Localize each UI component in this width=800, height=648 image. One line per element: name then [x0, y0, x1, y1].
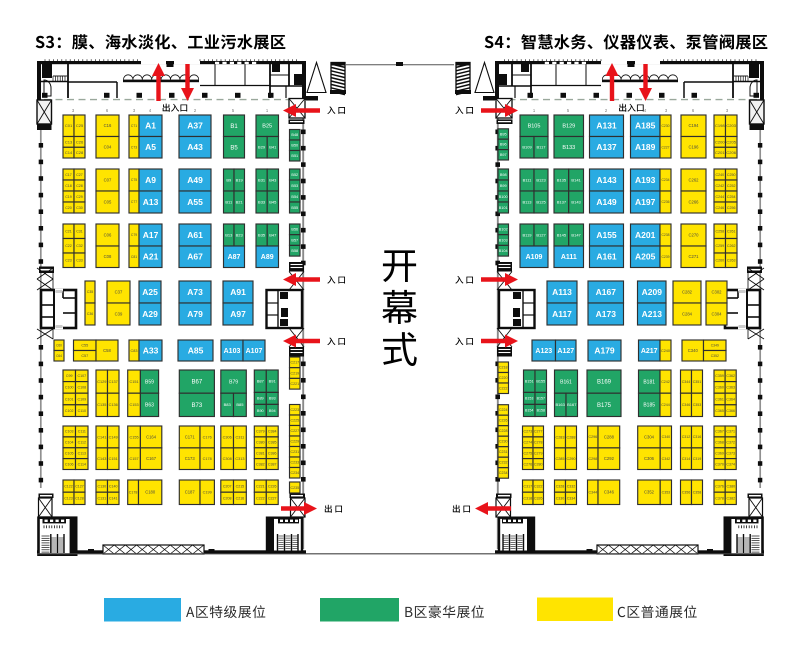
svg-text:C39: C39 [115, 312, 123, 317]
svg-text:C222: C222 [256, 497, 265, 501]
svg-text:C127: C127 [75, 484, 84, 488]
svg-text:C32: C32 [76, 244, 83, 248]
svg-text:C109: C109 [78, 397, 87, 401]
svg-text:B50: B50 [291, 144, 298, 148]
svg-text:B143: B143 [571, 199, 581, 204]
svg-text:C240: C240 [661, 349, 670, 353]
svg-text:C225: C225 [291, 419, 300, 423]
svg-text:B87: B87 [257, 379, 265, 384]
svg-text:C201: C201 [715, 150, 725, 155]
svg-text:C274: C274 [524, 441, 533, 445]
svg-text:B95: B95 [500, 132, 507, 136]
svg-text:C222: C222 [499, 387, 508, 391]
svg-text:C258: C258 [716, 230, 725, 234]
svg-text:C384: C384 [268, 430, 277, 434]
svg-text:C313: C313 [235, 457, 244, 461]
svg-text:C326: C326 [534, 497, 543, 501]
svg-text:C252: C252 [727, 184, 736, 188]
svg-text:C37: C37 [115, 290, 123, 295]
svg-text:B100: B100 [499, 195, 508, 199]
svg-text:C308: C308 [223, 457, 232, 461]
svg-text:C370: C370 [715, 462, 724, 466]
svg-text:C14: C14 [65, 150, 73, 155]
svg-text:C21: C21 [65, 230, 72, 234]
svg-text:B141: B141 [571, 177, 581, 182]
svg-text:C77: C77 [131, 200, 137, 204]
svg-text:C235: C235 [291, 486, 300, 490]
svg-text:C262: C262 [727, 244, 736, 248]
svg-text:C208: C208 [223, 497, 232, 501]
svg-text:B48: B48 [291, 133, 298, 137]
svg-text:B151: B151 [525, 380, 534, 384]
svg-text:C207: C207 [223, 484, 232, 488]
svg-text:C240: C240 [716, 173, 725, 177]
svg-text:C278: C278 [534, 441, 543, 445]
svg-text:C378: C378 [715, 497, 724, 501]
svg-text:C256: C256 [727, 206, 736, 210]
svg-text:C306: C306 [644, 456, 655, 461]
svg-text:C231: C231 [499, 450, 508, 454]
svg-text:C215: C215 [236, 484, 245, 488]
svg-text:C284: C284 [682, 312, 693, 317]
svg-text:C346: C346 [604, 490, 615, 495]
svg-text:C369: C369 [715, 452, 724, 456]
svg-text:C330: C330 [556, 497, 565, 501]
svg-text:C220: C220 [499, 376, 508, 380]
svg-text:A33: A33 [143, 346, 159, 356]
svg-text:C283: C283 [555, 435, 564, 439]
svg-text:C104: C104 [65, 441, 74, 445]
svg-text:C254: C254 [727, 195, 736, 199]
svg-text:C304: C304 [644, 434, 655, 439]
svg-text:B94: B94 [269, 409, 276, 413]
svg-text:C29: C29 [76, 195, 83, 199]
svg-text:B104: B104 [499, 249, 508, 253]
svg-text:C273: C273 [524, 430, 533, 434]
svg-text:C340: C340 [688, 348, 699, 353]
svg-text:C131: C131 [98, 497, 107, 501]
svg-text:C292: C292 [604, 456, 615, 461]
svg-text:C27: C27 [76, 173, 83, 177]
svg-text:C344: C344 [589, 491, 598, 495]
svg-text:C149: C149 [109, 435, 118, 439]
svg-text:C178: C178 [203, 457, 212, 461]
svg-text:C387: C387 [268, 462, 277, 466]
svg-text:C270: C270 [688, 233, 699, 238]
svg-text:C180: C180 [145, 490, 156, 495]
svg-text:B98: B98 [500, 173, 507, 177]
svg-text:C261: C261 [727, 230, 736, 234]
svg-text:A197: A197 [635, 197, 656, 207]
svg-text:C244: C244 [661, 403, 670, 407]
svg-text:C35: C35 [87, 290, 93, 294]
svg-text:A127: A127 [557, 348, 574, 355]
svg-text:B57: B57 [291, 238, 298, 242]
svg-text:B127: B127 [536, 232, 546, 237]
svg-text:A1: A1 [145, 121, 156, 131]
svg-text:B147: B147 [571, 232, 581, 237]
svg-text:B45: B45 [269, 199, 277, 204]
svg-text:C111: C111 [78, 430, 86, 434]
svg-text:C18: C18 [65, 184, 72, 188]
svg-text:B53: B53 [291, 184, 298, 188]
svg-text:C36: C36 [87, 312, 93, 316]
svg-text:A107: A107 [246, 348, 263, 355]
svg-text:A209: A209 [642, 287, 663, 297]
svg-text:B125: B125 [536, 199, 546, 204]
svg-text:C276: C276 [524, 462, 533, 466]
svg-text:A217: A217 [641, 348, 658, 355]
svg-text:B129: B129 [562, 124, 575, 130]
svg-text:C198: C198 [715, 123, 725, 128]
svg-text:C19: C19 [65, 195, 72, 199]
svg-text:C223: C223 [291, 408, 300, 412]
svg-text:C229: C229 [291, 440, 300, 444]
svg-text:C318: C318 [524, 497, 533, 501]
svg-text:C55: C55 [81, 344, 88, 348]
svg-text:C234: C234 [291, 471, 300, 475]
svg-text:C135: C135 [97, 403, 106, 407]
svg-text:C128: C128 [75, 497, 84, 501]
svg-text:A189: A189 [635, 142, 656, 152]
svg-text:B113: B113 [522, 199, 532, 204]
svg-text:A205: A205 [635, 252, 656, 262]
svg-text:C386: C386 [268, 452, 277, 456]
svg-text:C379: C379 [256, 430, 265, 434]
svg-text:C130: C130 [98, 484, 107, 488]
svg-text:C23: C23 [65, 259, 72, 263]
svg-text:B161: B161 [560, 379, 572, 385]
svg-text:B51: B51 [291, 154, 298, 158]
svg-text:C380: C380 [727, 484, 736, 488]
svg-text:C141: C141 [109, 497, 118, 501]
svg-text:C200: C200 [715, 139, 725, 144]
svg-text:C217: C217 [291, 361, 300, 365]
svg-text:C194: C194 [688, 123, 699, 128]
svg-text:B93: B93 [269, 397, 276, 401]
svg-text:C356: C356 [682, 491, 691, 495]
svg-text:C101: C101 [65, 397, 74, 401]
svg-text:C140: C140 [109, 484, 118, 488]
svg-text:C351: C351 [693, 380, 702, 384]
svg-text:B56: B56 [291, 228, 298, 232]
svg-text:C232: C232 [499, 461, 508, 465]
svg-text:C259: C259 [716, 244, 725, 248]
svg-text:B89: B89 [257, 397, 264, 401]
svg-text:C08: C08 [104, 254, 112, 259]
svg-text:C110: C110 [78, 409, 86, 413]
svg-text:B19: B19 [236, 177, 244, 182]
svg-text:C221: C221 [256, 484, 265, 488]
svg-text:B55: B55 [291, 206, 298, 210]
svg-text:A9: A9 [145, 175, 156, 185]
svg-text:C306: C306 [223, 435, 232, 439]
svg-text:C83: C83 [131, 349, 138, 353]
svg-text:C365: C365 [715, 409, 724, 413]
svg-text:C361: C361 [715, 397, 724, 401]
svg-text:C332: C332 [567, 484, 576, 488]
svg-text:B54: B54 [291, 195, 298, 199]
svg-text:A143: A143 [596, 175, 617, 185]
svg-text:C113: C113 [78, 452, 86, 456]
svg-text:C363: C363 [726, 386, 735, 390]
svg-text:C31: C31 [76, 230, 83, 234]
svg-text:C334: C334 [567, 497, 576, 501]
svg-text:C314: C314 [682, 457, 691, 461]
svg-text:C33: C33 [76, 259, 83, 263]
svg-text:B99: B99 [500, 184, 507, 188]
svg-text:C373: C373 [726, 452, 735, 456]
svg-text:C382: C382 [256, 462, 265, 466]
svg-text:B21: B21 [236, 199, 244, 204]
svg-text:A149: A149 [596, 197, 617, 207]
svg-text:C228: C228 [499, 429, 508, 433]
svg-text:B23: B23 [236, 232, 244, 237]
svg-text:C317: C317 [524, 484, 533, 488]
svg-text:B1: B1 [230, 124, 238, 130]
svg-text:A167: A167 [596, 287, 617, 297]
svg-text:B35: B35 [258, 232, 266, 237]
svg-text:B79: B79 [229, 379, 238, 385]
svg-text:C205: C205 [726, 139, 736, 144]
svg-text:C75: C75 [131, 178, 137, 182]
svg-text:A201: A201 [635, 230, 656, 240]
svg-text:B119: B119 [522, 232, 532, 237]
svg-text:B83: B83 [224, 402, 232, 407]
svg-text:C352: C352 [711, 354, 719, 358]
svg-text:C218: C218 [499, 366, 508, 370]
svg-text:C353: C353 [662, 491, 671, 495]
svg-text:C368: C368 [715, 441, 724, 445]
svg-text:C280: C280 [534, 462, 543, 466]
svg-text:B29: B29 [258, 145, 266, 150]
svg-text:C381: C381 [256, 452, 265, 456]
svg-text:C349: C349 [711, 343, 719, 347]
svg-text:B117: B117 [536, 145, 546, 150]
svg-text:A5: A5 [145, 142, 156, 152]
svg-text:C362: C362 [726, 374, 735, 378]
svg-text:C234: C234 [661, 178, 669, 182]
svg-text:C282: C282 [682, 290, 693, 295]
svg-text:A85: A85 [188, 346, 204, 356]
svg-text:C105: C105 [65, 452, 74, 456]
svg-text:B123: B123 [536, 177, 546, 182]
svg-text:C263: C263 [727, 259, 736, 263]
svg-text:C304: C304 [711, 312, 722, 317]
svg-text:C25: C25 [76, 123, 84, 128]
svg-text:A43: A43 [187, 142, 203, 152]
svg-text:B137: B137 [557, 199, 567, 204]
svg-text:C219: C219 [291, 371, 300, 375]
svg-text:C233: C233 [291, 461, 300, 465]
svg-text:C227: C227 [291, 429, 300, 433]
svg-text:A193: A193 [635, 175, 656, 185]
svg-text:A103: A103 [224, 348, 241, 355]
svg-text:A29: A29 [142, 309, 158, 319]
svg-text:C288: C288 [566, 435, 575, 439]
svg-text:A73: A73 [187, 287, 203, 297]
svg-text:B47: B47 [269, 232, 277, 237]
svg-text:C221: C221 [291, 382, 300, 386]
svg-text:C107: C107 [78, 374, 87, 378]
svg-text:C277: C277 [534, 430, 543, 434]
svg-text:C203: C203 [726, 123, 736, 128]
svg-text:C230: C230 [499, 440, 508, 444]
svg-text:B105: B105 [528, 124, 541, 130]
svg-text:B169: B169 [597, 380, 612, 386]
svg-text:C206: C206 [726, 150, 736, 155]
svg-text:C385: C385 [268, 441, 277, 445]
svg-text:C73: C73 [131, 145, 137, 149]
svg-text:A67: A67 [187, 252, 203, 262]
svg-text:C196: C196 [688, 145, 699, 150]
svg-text:C143: C143 [97, 457, 106, 461]
svg-text:C234: C234 [499, 471, 508, 475]
svg-text:C30: C30 [76, 206, 83, 210]
svg-text:A185: A185 [635, 121, 656, 131]
svg-text:C364: C364 [726, 397, 735, 401]
svg-text:A161: A161 [596, 252, 617, 262]
svg-text:C227: C227 [661, 145, 669, 149]
svg-text:C290: C290 [566, 457, 575, 461]
svg-text:A179: A179 [594, 346, 615, 356]
svg-text:C311: C311 [236, 435, 245, 439]
svg-text:C153: C153 [130, 403, 139, 407]
svg-text:A137: A137 [596, 142, 617, 152]
svg-text:C371: C371 [726, 430, 735, 434]
svg-text:C06: C06 [104, 233, 112, 238]
svg-text:B59: B59 [145, 379, 154, 385]
svg-text:B167: B167 [567, 402, 577, 407]
svg-text:C242: C242 [716, 184, 725, 188]
svg-text:A131: A131 [596, 121, 617, 131]
svg-text:C112: C112 [78, 441, 86, 445]
svg-text:A21: A21 [143, 252, 159, 262]
svg-text:C250: C250 [727, 173, 736, 177]
svg-text:C176: C176 [203, 435, 212, 439]
svg-text:C01: C01 [65, 123, 73, 128]
svg-text:C230: C230 [661, 124, 669, 128]
svg-text:A37: A37 [187, 121, 203, 131]
svg-text:C106: C106 [65, 462, 74, 466]
svg-text:B181: B181 [643, 379, 655, 385]
svg-text:B103: B103 [499, 238, 508, 242]
svg-text:C164: C164 [146, 434, 157, 439]
svg-text:A113: A113 [552, 287, 572, 297]
svg-text:C129: C129 [97, 380, 106, 384]
svg-text:C239: C239 [661, 255, 669, 259]
svg-text:C26: C26 [76, 139, 84, 144]
svg-text:C358: C358 [693, 491, 702, 495]
svg-text:C157: C157 [130, 457, 139, 461]
svg-text:C64: C64 [56, 354, 62, 358]
svg-text:C71: C71 [131, 124, 137, 128]
svg-text:B58: B58 [291, 249, 298, 253]
svg-text:C288: C288 [604, 434, 615, 439]
svg-text:B41: B41 [269, 145, 277, 150]
svg-text:C244: C244 [716, 195, 725, 199]
svg-text:C151: C151 [109, 457, 118, 461]
svg-text:B31: B31 [258, 177, 266, 182]
svg-text:B9: B9 [226, 177, 232, 182]
svg-text:B153: B153 [525, 397, 533, 401]
svg-text:C366: C366 [726, 409, 735, 413]
svg-text:C342: C342 [662, 457, 671, 461]
svg-text:C238: C238 [661, 233, 669, 237]
svg-text:A17: A17 [143, 230, 159, 240]
svg-text:C178: C178 [129, 491, 138, 495]
svg-text:B101: B101 [499, 206, 508, 210]
svg-text:B90: B90 [257, 409, 264, 413]
svg-text:A87: A87 [228, 254, 241, 261]
svg-text:C155: C155 [130, 435, 139, 439]
svg-text:B67: B67 [192, 380, 203, 386]
svg-text:C227: C227 [268, 497, 277, 501]
svg-text:C242: C242 [661, 380, 670, 384]
svg-text:B96: B96 [500, 143, 507, 147]
svg-text:C271: C271 [688, 254, 699, 259]
svg-text:C81: C81 [131, 255, 137, 259]
svg-text:A117: A117 [552, 309, 572, 319]
svg-text:A213: A213 [642, 309, 663, 319]
svg-text:C367: C367 [715, 430, 724, 434]
svg-text:B63: B63 [145, 403, 154, 409]
svg-text:C13: C13 [65, 139, 73, 144]
svg-text:C137: C137 [109, 380, 118, 384]
svg-text:C123: C123 [64, 497, 73, 501]
svg-text:B43: B43 [269, 177, 277, 182]
svg-text:B109: B109 [522, 145, 532, 150]
svg-text:C22: C22 [65, 244, 72, 248]
svg-text:A97: A97 [230, 309, 246, 319]
svg-text:C226: C226 [499, 419, 508, 423]
svg-text:C171: C171 [185, 434, 196, 439]
svg-text:C103: C103 [65, 430, 74, 434]
svg-text:C05: C05 [104, 200, 112, 205]
svg-text:B97: B97 [500, 153, 507, 157]
svg-text:C151: C151 [130, 380, 139, 384]
svg-text:A91: A91 [230, 287, 246, 297]
svg-text:B111: B111 [523, 177, 533, 182]
svg-text:C28: C28 [76, 184, 83, 188]
svg-text:C99: C99 [66, 374, 73, 378]
svg-text:C20: C20 [65, 206, 72, 210]
svg-text:A49: A49 [187, 175, 203, 185]
svg-text:C380: C380 [256, 441, 265, 445]
svg-text:A109: A109 [526, 254, 543, 261]
svg-text:A173: A173 [596, 309, 617, 319]
svg-text:C141: C141 [97, 435, 106, 439]
svg-text:C382: C382 [727, 497, 736, 501]
svg-text:C79: C79 [131, 233, 137, 237]
svg-text:C199: C199 [203, 491, 212, 495]
svg-text:B85: B85 [236, 402, 244, 407]
svg-text:C298: C298 [589, 457, 598, 461]
svg-text:C312: C312 [682, 435, 691, 439]
svg-text:C346: C346 [682, 403, 691, 407]
svg-text:C28: C28 [76, 150, 84, 155]
svg-text:C316: C316 [693, 435, 702, 439]
svg-text:A155: A155 [596, 230, 617, 240]
svg-text:C231: C231 [291, 450, 300, 454]
svg-text:A111: A111 [561, 254, 577, 261]
svg-text:C236: C236 [661, 200, 669, 204]
svg-text:B157: B157 [537, 397, 545, 401]
svg-text:A55: A55 [187, 197, 203, 207]
svg-text:C246: C246 [716, 206, 725, 210]
svg-text:C100: C100 [65, 386, 74, 390]
svg-text:C216: C216 [236, 497, 245, 501]
